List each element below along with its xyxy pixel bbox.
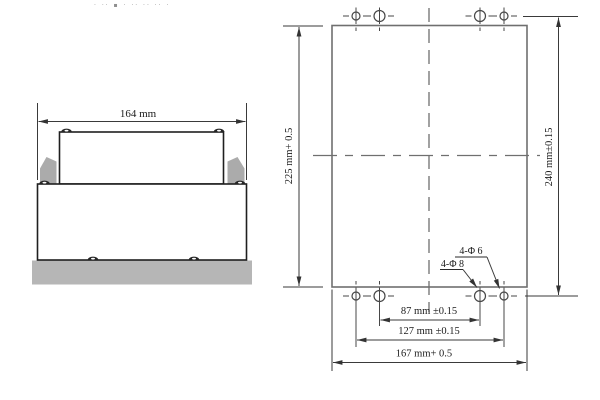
cutout-height-dimension: 225 mm+ 0.5 — [283, 26, 323, 287]
hole-row-spacing-dimension: 240 mm±0.15 — [523, 17, 578, 297]
front-bezel — [38, 184, 247, 260]
width-dimension-label: 164 mm — [120, 108, 157, 120]
mounting-clip-right — [228, 157, 245, 184]
panel-base — [32, 261, 252, 285]
hole-callout-phi8: 4-Φ 8 — [440, 259, 477, 288]
cutout-height-label: 225 mm+ 0.5 — [284, 128, 295, 184]
leader-line — [487, 257, 500, 289]
mounting-hole-top-1 — [343, 8, 369, 32]
phi8-label: 4-Φ 8 — [441, 259, 464, 270]
phi6-label: 4-Φ 6 — [459, 246, 482, 257]
inner-hole-span-dimension: 87 mm ±0.15 — [381, 306, 480, 320]
mounting-hole-bottom-1 — [343, 281, 369, 347]
leader-line — [463, 270, 477, 288]
mounting-clip-left — [40, 157, 57, 184]
outer-hole-span-dimension: 127 mm ±0.15 — [357, 326, 503, 340]
panel-cutout-view: 225 mm+ 0.5 240 mm±0.15 4-Φ 6 4-Φ 8 87 m… — [283, 8, 578, 372]
side-view: 164 mm — [32, 103, 252, 285]
inner-hole-span-label: 87 mm ±0.15 — [401, 306, 457, 317]
hole-row-spacing-label: 240 mm±0.15 — [544, 128, 555, 187]
mounting-hole-top-3 — [466, 8, 495, 32]
mounting-hole-top-2 — [365, 8, 394, 32]
outer-hole-span-label: 127 mm ±0.15 — [398, 326, 459, 337]
technical-drawing-page: { "colors": { "bg": "#ffffff", "ink": "#… — [0, 0, 600, 400]
mounting-hole-top-4 — [491, 8, 517, 32]
rear-case — [60, 132, 224, 184]
mounting-hole-bottom-4 — [491, 281, 517, 347]
cutout-width-label: 167 mm+ 0.5 — [396, 349, 452, 360]
dimension-drawing: 164 mm — [0, 0, 600, 400]
